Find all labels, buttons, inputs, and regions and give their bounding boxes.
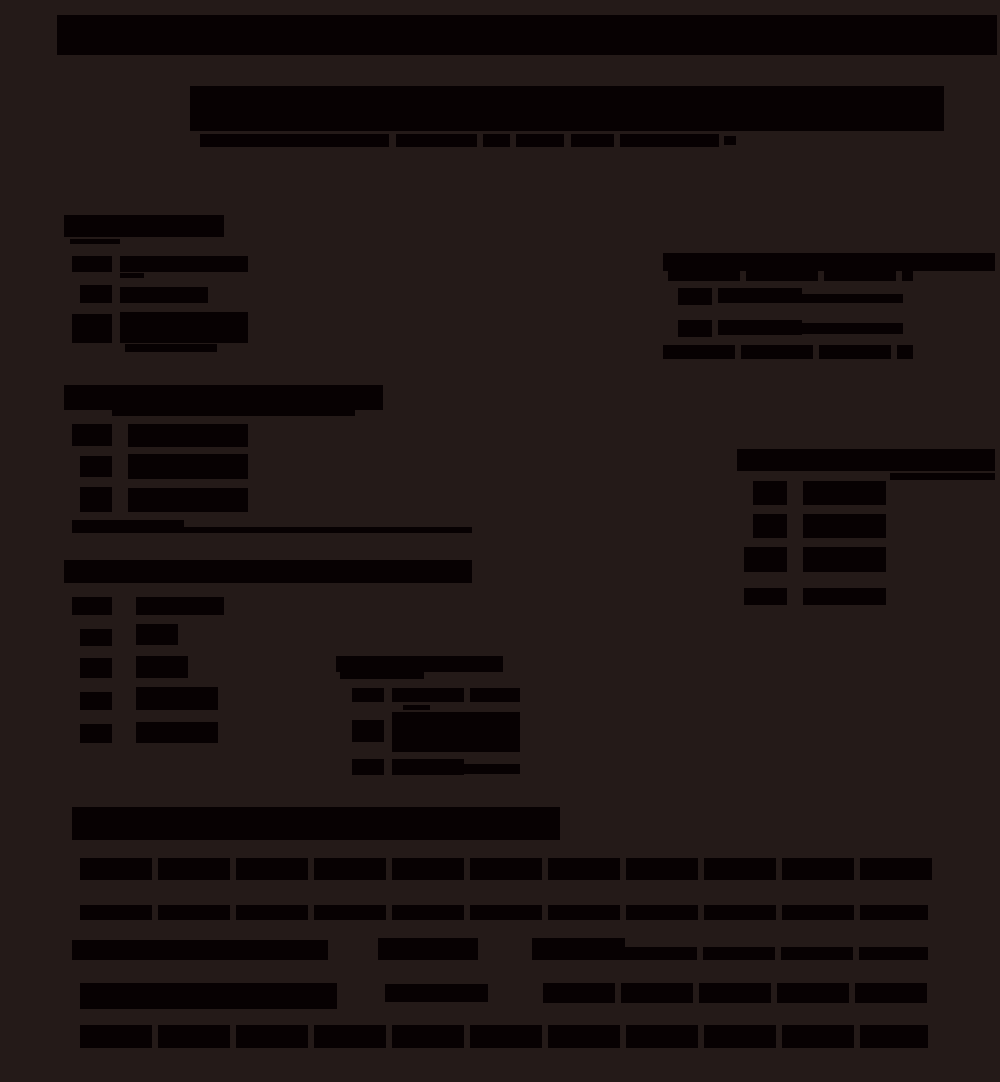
section1-item1-note — [120, 273, 144, 278]
subsection-item3-box — [352, 759, 384, 775]
document-page — [0, 0, 1000, 1082]
subtitle-seg-7 — [724, 136, 736, 145]
section2-itemB-text — [128, 454, 248, 479]
section3-item4-text — [136, 687, 218, 710]
section2-header-bar — [64, 385, 383, 410]
table-header-bar — [737, 449, 995, 471]
right-section-footnote-line — [663, 345, 913, 359]
bottom-row1-seg2 — [378, 938, 478, 960]
section1-header-note — [70, 239, 120, 244]
table-header-subline — [890, 473, 995, 480]
section1-item2-box — [80, 285, 112, 303]
subsection-item1-box — [352, 688, 384, 702]
section2-header-subline — [112, 410, 355, 416]
section3-item1-text — [136, 597, 224, 615]
table-row4-value — [803, 588, 886, 605]
table-row3-value — [803, 547, 886, 572]
section3-item1-box — [72, 597, 112, 615]
section3-item3-text — [136, 656, 188, 678]
subsection-header-bar — [336, 656, 503, 672]
right-option2-text — [718, 320, 802, 335]
subtitle-seg-5 — [571, 134, 614, 147]
section1-item3-box — [72, 314, 112, 343]
bottom-row2-seg3 — [543, 983, 928, 1003]
section3-item5-box — [80, 724, 112, 743]
subtitle-seg-2 — [396, 134, 477, 147]
subsection-item2-box — [352, 720, 384, 742]
subsection-item3-text — [392, 759, 464, 775]
right-option1-text — [718, 288, 802, 303]
bottom-row2-seg2 — [385, 984, 488, 1002]
subsection-item2-pre — [403, 705, 430, 710]
section2-note-text — [72, 520, 184, 533]
subtitle-seg-6 — [620, 134, 719, 147]
section2-itemB-box — [80, 456, 112, 477]
section1-item1-text — [120, 256, 248, 272]
section1-header-bar — [64, 215, 224, 237]
section1-item3-text — [120, 312, 248, 343]
section1-item3-note — [125, 344, 217, 352]
table-row3-label-box — [744, 547, 787, 572]
section2-note-rule — [184, 527, 472, 533]
section2-itemC-box — [80, 487, 112, 512]
table-row2-value — [803, 514, 886, 538]
subtitle-seg-4 — [516, 134, 564, 147]
subsection-item3-line — [464, 764, 520, 774]
right-section-subheader-line — [668, 271, 913, 281]
section1-item1-box — [72, 256, 112, 272]
section3-item3-box — [80, 658, 112, 678]
section2-itemC-text — [128, 488, 248, 512]
bottom-row1-seg1 — [72, 940, 328, 960]
bottom-row1-line — [625, 947, 928, 960]
bottom-row2-seg1 — [80, 983, 337, 1009]
subsection-item2-text — [392, 712, 520, 752]
bottom-row1-seg3 — [532, 938, 625, 960]
right-section-header-bar — [663, 253, 995, 271]
top-banner-bar — [57, 15, 997, 55]
section3-item2-text — [136, 624, 178, 645]
right-option2-box — [678, 320, 712, 337]
section1-item2-text — [120, 287, 208, 303]
right-option1-box — [678, 288, 712, 305]
table-row4-label-box — [744, 588, 787, 605]
doc-title-block — [190, 86, 944, 131]
subsection-item1-text — [392, 688, 520, 702]
subtitle-seg-3 — [483, 134, 510, 147]
section2-itemA-text — [128, 424, 248, 447]
bottom-header-bar — [72, 807, 560, 840]
table-row1-value — [803, 481, 886, 505]
bottom-line2 — [80, 905, 928, 920]
table-row1-label-box — [753, 481, 787, 505]
right-option2-line — [802, 323, 903, 334]
subtitle-seg-1 — [200, 134, 389, 147]
subsection-header-note — [340, 672, 424, 679]
section3-header-bar — [64, 560, 472, 583]
section3-item4-box — [80, 692, 112, 710]
section3-item5-text — [136, 722, 218, 743]
bottom-line3 — [80, 1025, 928, 1048]
section3-item2-box — [80, 629, 112, 646]
table-row2-label-box — [753, 514, 787, 538]
right-option1-line — [802, 294, 903, 303]
section2-itemA-box — [72, 424, 112, 446]
bottom-line1 — [80, 858, 937, 880]
